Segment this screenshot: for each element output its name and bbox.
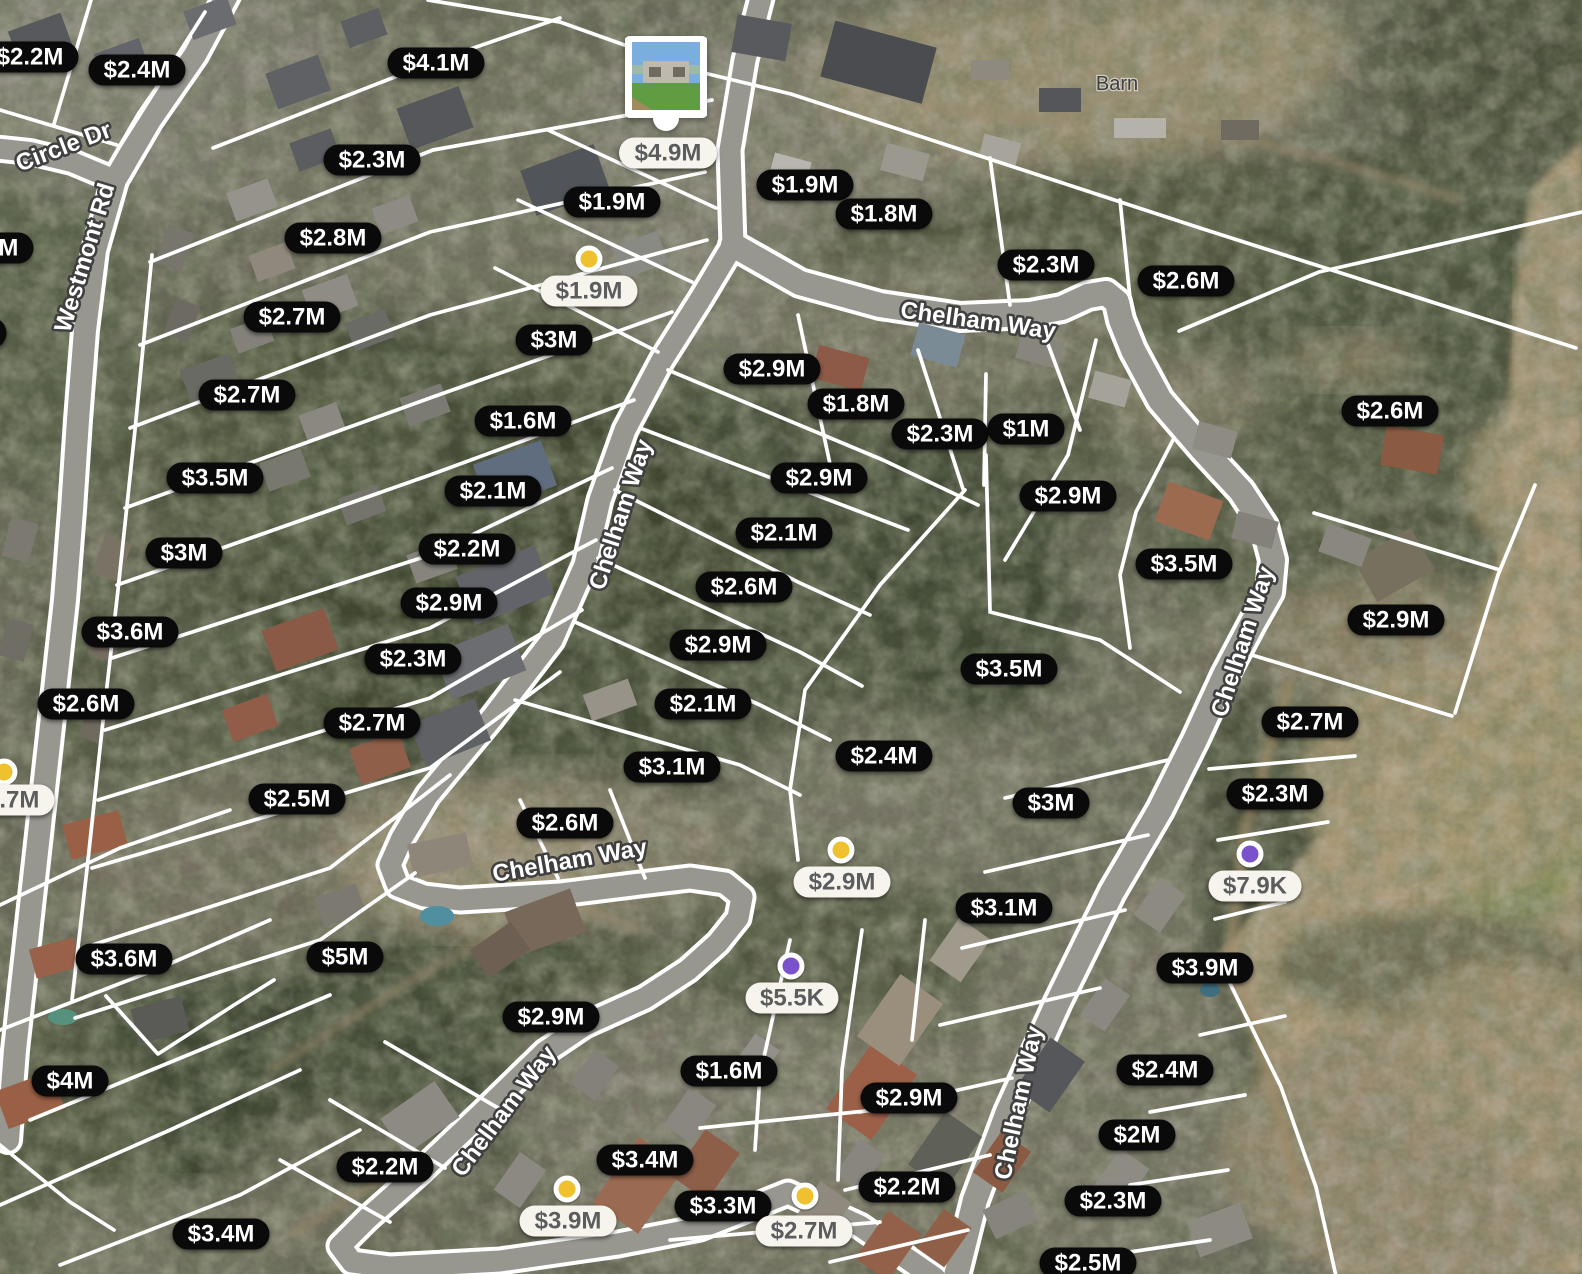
svg-text:Barn: Barn xyxy=(1096,73,1138,95)
